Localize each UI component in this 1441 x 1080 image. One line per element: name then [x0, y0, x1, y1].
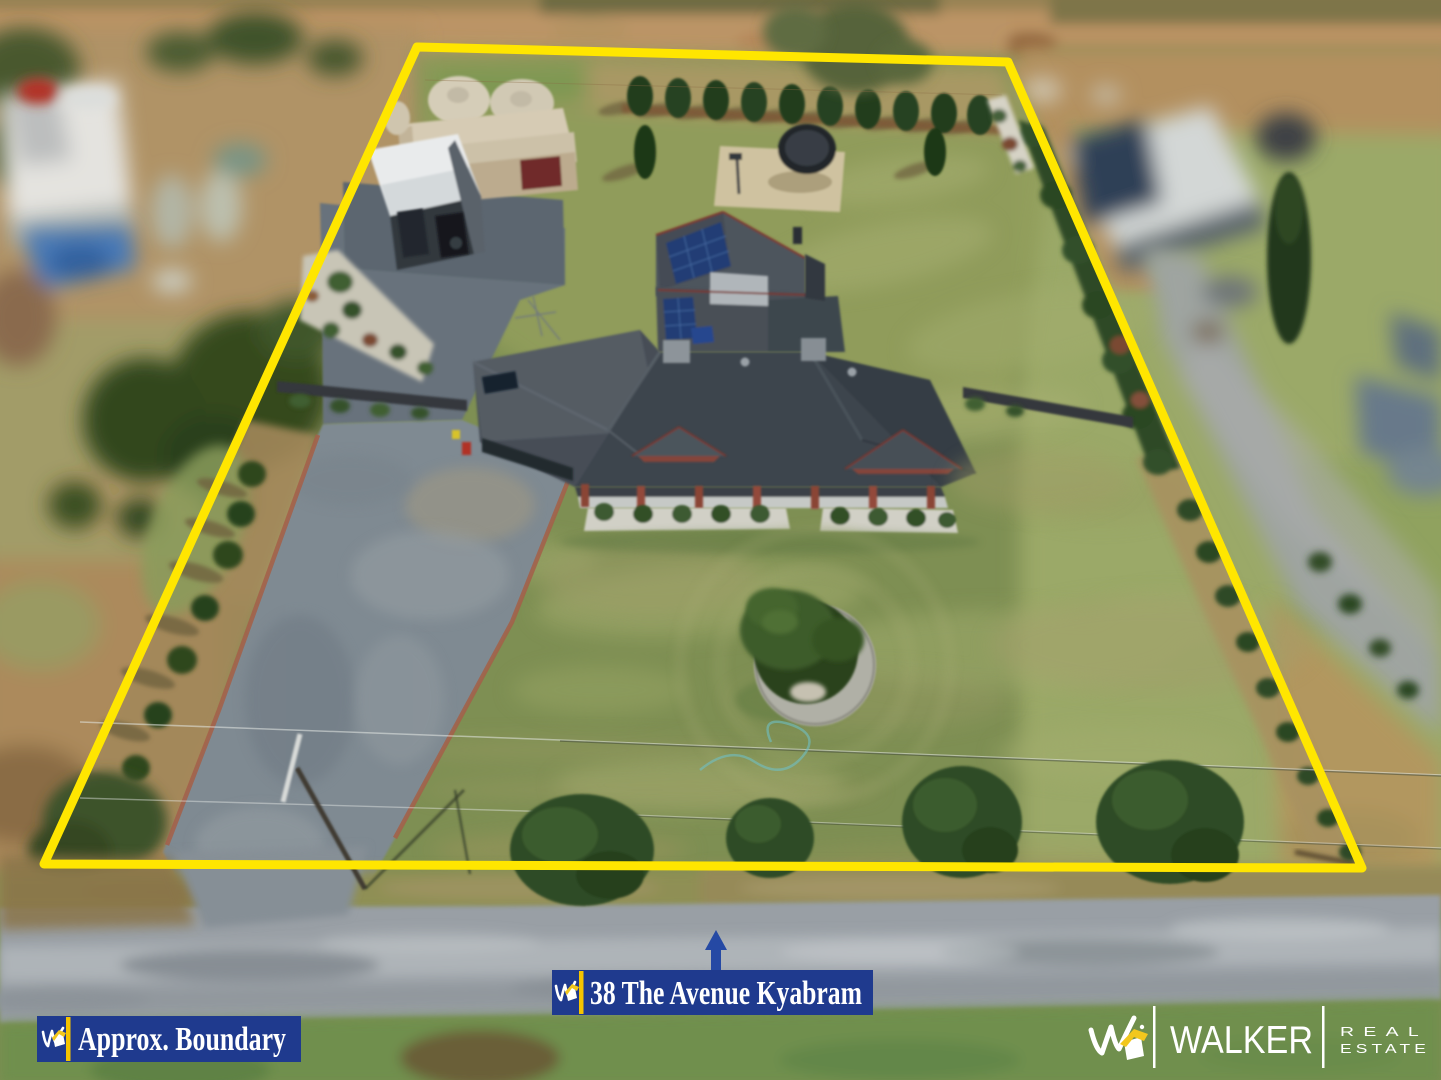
svg-text:WALKER: WALKER	[1170, 1019, 1313, 1062]
svg-text:38 The Avenue Kyabram: 38 The Avenue Kyabram	[590, 975, 862, 1012]
svg-text:REAL: REAL	[1340, 1025, 1428, 1039]
svg-text:ESTATE: ESTATE	[1340, 1042, 1430, 1056]
svg-text:Approx. Boundary: Approx. Boundary	[78, 1021, 286, 1058]
